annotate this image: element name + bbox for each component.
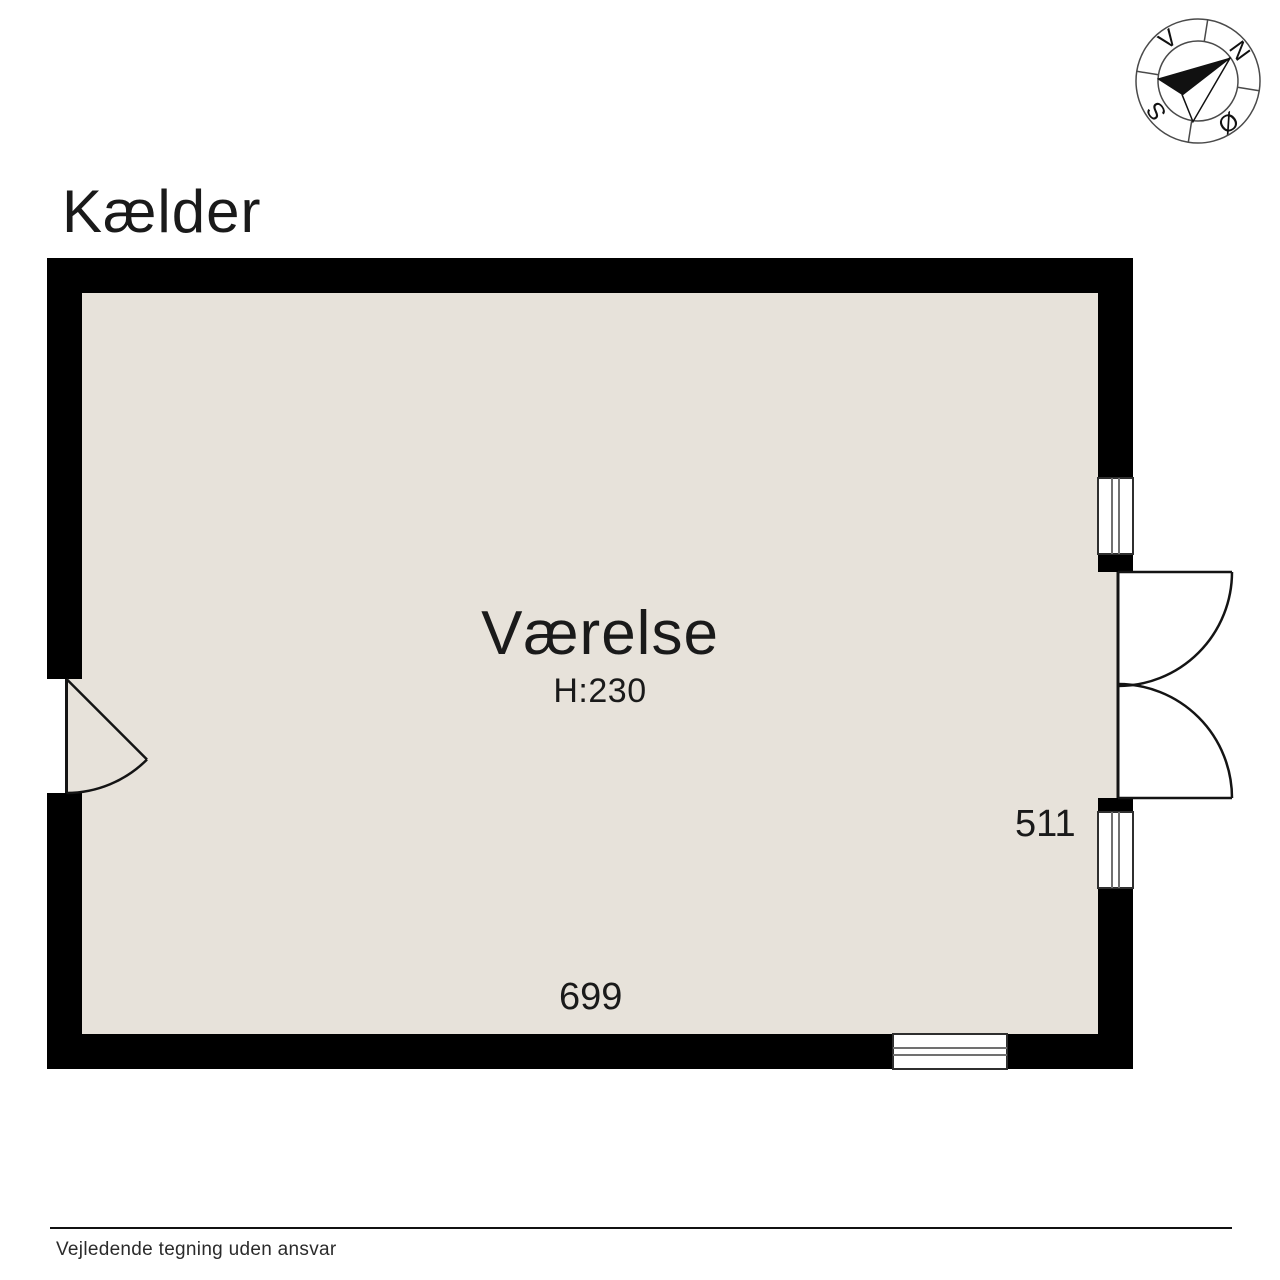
wall-right-segment-4 (1098, 888, 1133, 1069)
plan-title: Kælder (62, 182, 261, 242)
window-right-lower (1098, 812, 1133, 888)
floorplan-page: N Ø S V Kælder Værelse H:230 511 699 Vej… (0, 0, 1280, 1280)
right-door-opening-floor (1098, 572, 1119, 798)
window-frame (1098, 812, 1133, 888)
room-ceiling-height-label: H:230 (481, 674, 719, 708)
wall-right-segment-1 (1098, 258, 1133, 478)
room-label-group: Værelse H:230 (481, 603, 719, 708)
door-swing-arc-right-bottom (1118, 684, 1232, 798)
compass-rose: N Ø S V (1108, 0, 1280, 171)
window-frame (1098, 478, 1133, 554)
dimension-depth-label: 511 (1015, 805, 1076, 843)
wall-bottom-left-segment (47, 1034, 893, 1069)
footer-divider (50, 1227, 1232, 1229)
wall-left-upper-segment (47, 258, 82, 679)
footer-disclaimer: Vejledende tegning uden ansvar (56, 1239, 337, 1261)
wall-top (47, 258, 1133, 293)
window-bottom (893, 1034, 1007, 1069)
wall-right-segment-3 (1098, 798, 1133, 812)
wall-right-segment-2 (1098, 554, 1133, 572)
wall-left-lower-segment (47, 793, 82, 1069)
window-frame (893, 1034, 1007, 1069)
dimension-width-label: 699 (559, 978, 622, 1016)
door-swing-arc-right-top (1118, 572, 1232, 686)
room-name-label: Værelse (481, 603, 719, 665)
window-right-upper (1098, 478, 1133, 554)
left-door-opening-floor (66, 679, 82, 793)
door-right-double (1118, 572, 1232, 798)
